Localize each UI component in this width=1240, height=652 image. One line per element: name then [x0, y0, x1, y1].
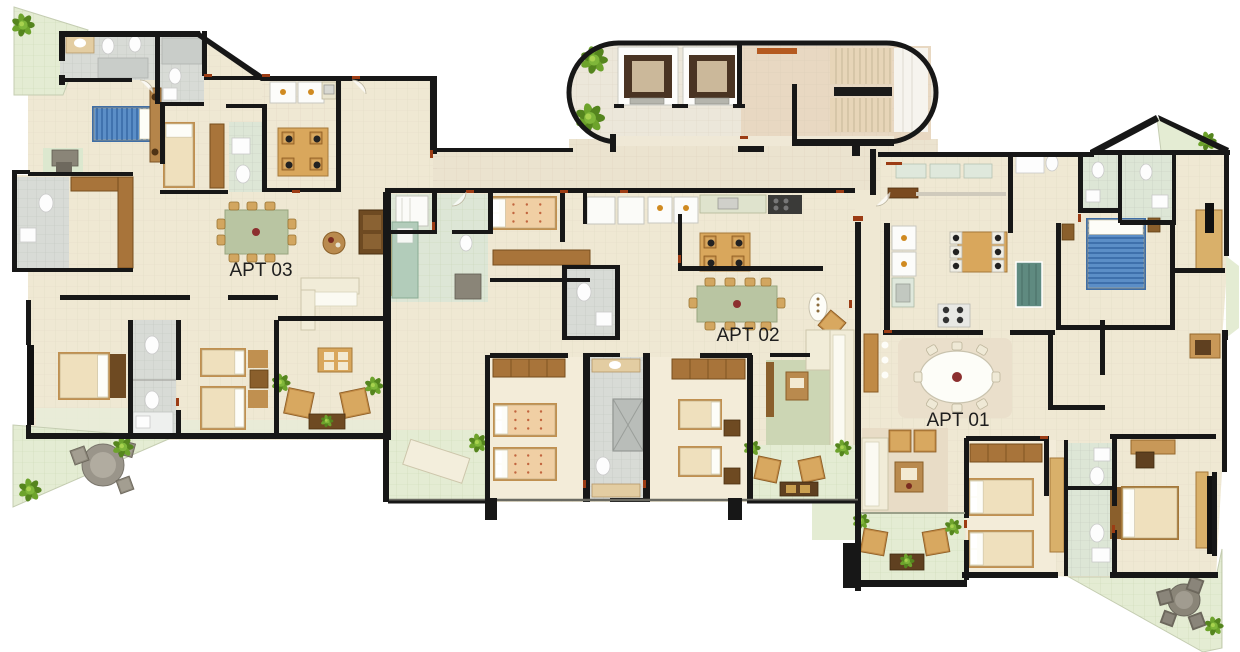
svg-text:APT 02: APT 02: [716, 325, 779, 346]
svg-text:APT 03: APT 03: [229, 260, 292, 281]
svg-text:APT 01: APT 01: [926, 410, 989, 431]
